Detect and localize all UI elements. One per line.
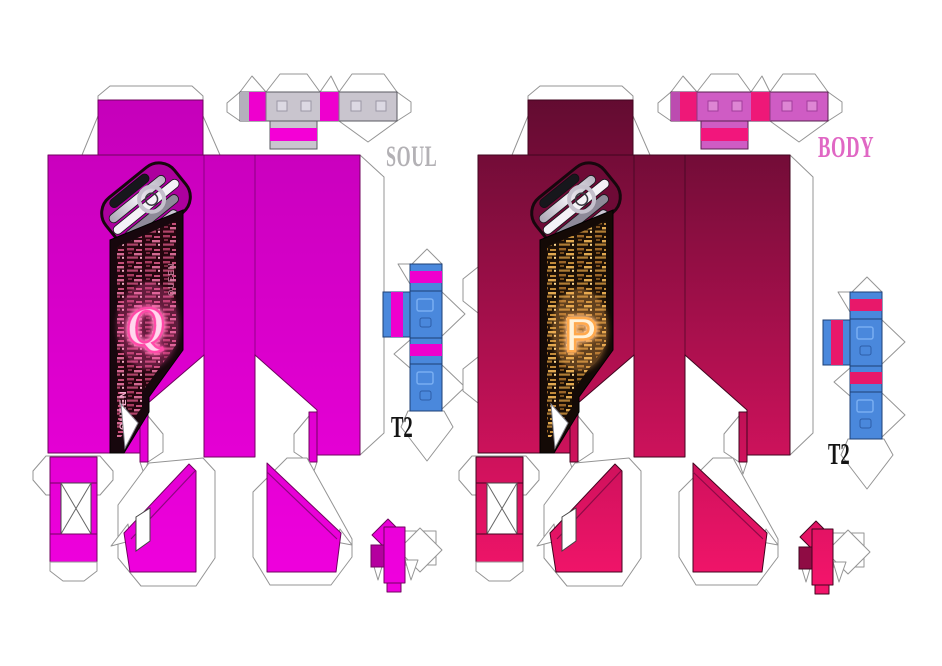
fold-tab: [882, 320, 905, 364]
fold-tab: [442, 292, 465, 336]
box-arm-stripe: [831, 320, 843, 365]
rivet-square: [376, 101, 386, 111]
size-tag-soul: T2: [391, 411, 413, 442]
rivet-square: [277, 101, 287, 111]
fold-tab: [838, 292, 850, 312]
fold-tab: [770, 74, 828, 92]
shoulder-piece-b-body: [679, 458, 778, 585]
connector-column: [384, 527, 405, 583]
box-band-stripe: [850, 372, 882, 384]
strip-sub-stripe: [701, 128, 748, 141]
glue-tab: [360, 155, 384, 455]
fold-tab: [405, 560, 418, 580]
box-face: [850, 319, 882, 366]
label-soul: SOUL: [386, 142, 437, 172]
fold-tab: [658, 92, 671, 121]
connector-tab: [387, 583, 401, 592]
shoulder-piece-b-soul: [253, 458, 352, 585]
fold-tab: [724, 416, 739, 462]
size-tag-body: T2: [828, 438, 850, 469]
head-panel: [528, 100, 633, 155]
fold-tab: [697, 74, 751, 92]
rivet-square: [782, 101, 792, 111]
foot-piece-body: [459, 456, 539, 581]
box-face: [410, 291, 442, 338]
rivet-square: [807, 101, 817, 111]
box-face: [410, 364, 442, 411]
fold-tab: [671, 76, 697, 92]
foot-piece-soul: [33, 456, 113, 581]
leg-tab: [739, 412, 747, 462]
fold-tab: [339, 121, 397, 142]
foot-side: [91, 483, 97, 534]
fold-tab: [266, 74, 320, 92]
connector-column: [812, 529, 833, 585]
foot-bottom-bar: [476, 534, 523, 562]
main-body-piece-body: P: [463, 155, 813, 474]
rivet-square: [351, 101, 361, 111]
connector-tab: [815, 585, 829, 594]
foot-side: [517, 483, 523, 534]
screen-panel-soul: Q QUEEN QUEEN: [110, 210, 183, 453]
screen-letter-soul: Q: [122, 294, 169, 359]
head-panel: [98, 100, 203, 155]
fold-tab: [834, 368, 850, 396]
label-body: BODY: [818, 131, 874, 162]
detail-strip-piece-soul: [227, 74, 411, 149]
foot-top-bar: [50, 457, 97, 483]
fold-tab: [148, 416, 163, 462]
connector-piece-body: [799, 521, 870, 594]
box-cap-stripe: [850, 299, 882, 311]
fold-tab: [50, 562, 97, 581]
strip-stripe: [751, 92, 770, 121]
fold-tab: [442, 365, 465, 409]
shoulder-piece-a-body: [537, 458, 641, 586]
fold-tab: [227, 92, 240, 121]
connector-arm: [371, 545, 384, 567]
box-cap-stripe: [410, 271, 442, 283]
main-body-piece-soul: Q QUEEN QUEEN: [48, 155, 384, 474]
box-arm-stripe: [391, 292, 403, 337]
leg-tab: [309, 412, 317, 462]
fold-tab: [852, 277, 882, 292]
fold-tab: [882, 393, 905, 437]
foot-bottom-bar: [50, 534, 97, 562]
strip-stripe: [680, 92, 697, 121]
box-face: [850, 392, 882, 439]
head-flap-soul: [82, 86, 220, 155]
fold-tab: [397, 92, 411, 121]
strip-stripe: [320, 92, 339, 121]
foot-top-bar: [476, 457, 523, 483]
connector-arm: [799, 547, 812, 569]
screen-side-text: QUEEN: [167, 263, 176, 296]
fold-tab: [240, 76, 266, 92]
shoulder-piece-a-soul: [111, 458, 215, 586]
papercraft-sheet: Q QUEEN QUEEN: [0, 0, 942, 666]
glue-tab: [790, 155, 813, 455]
fold-tab: [412, 249, 442, 264]
fold-tab: [463, 357, 478, 403]
box-band-stripe: [410, 344, 442, 356]
fold-tab: [320, 76, 339, 92]
fold-tab: [751, 76, 770, 92]
fold-tab: [463, 267, 478, 313]
screen-panel-body: P: [540, 210, 613, 453]
connector-piece-soul: [371, 519, 442, 592]
strip-end-segment: [671, 92, 680, 121]
rivet-square: [708, 101, 718, 111]
rivet-square: [732, 101, 742, 111]
detail-strip-piece-body: [658, 74, 842, 149]
fold-tab: [476, 562, 523, 581]
fold-tab: [828, 92, 842, 121]
fold-tab: [394, 340, 410, 368]
head-flap-body: [512, 86, 650, 155]
fold-tab: [339, 74, 397, 92]
fold-tab: [398, 264, 410, 284]
strip-end-segment: [240, 92, 249, 121]
foot-side: [476, 483, 487, 534]
fold-tab: [578, 416, 593, 462]
fold-tab: [294, 416, 309, 462]
strip-sub-stripe: [270, 128, 317, 141]
strip-stripe: [249, 92, 266, 121]
fold-tab: [833, 562, 846, 582]
foot-side: [50, 483, 61, 534]
screen-letter-body: P: [565, 309, 597, 362]
rivet-square: [301, 101, 311, 111]
